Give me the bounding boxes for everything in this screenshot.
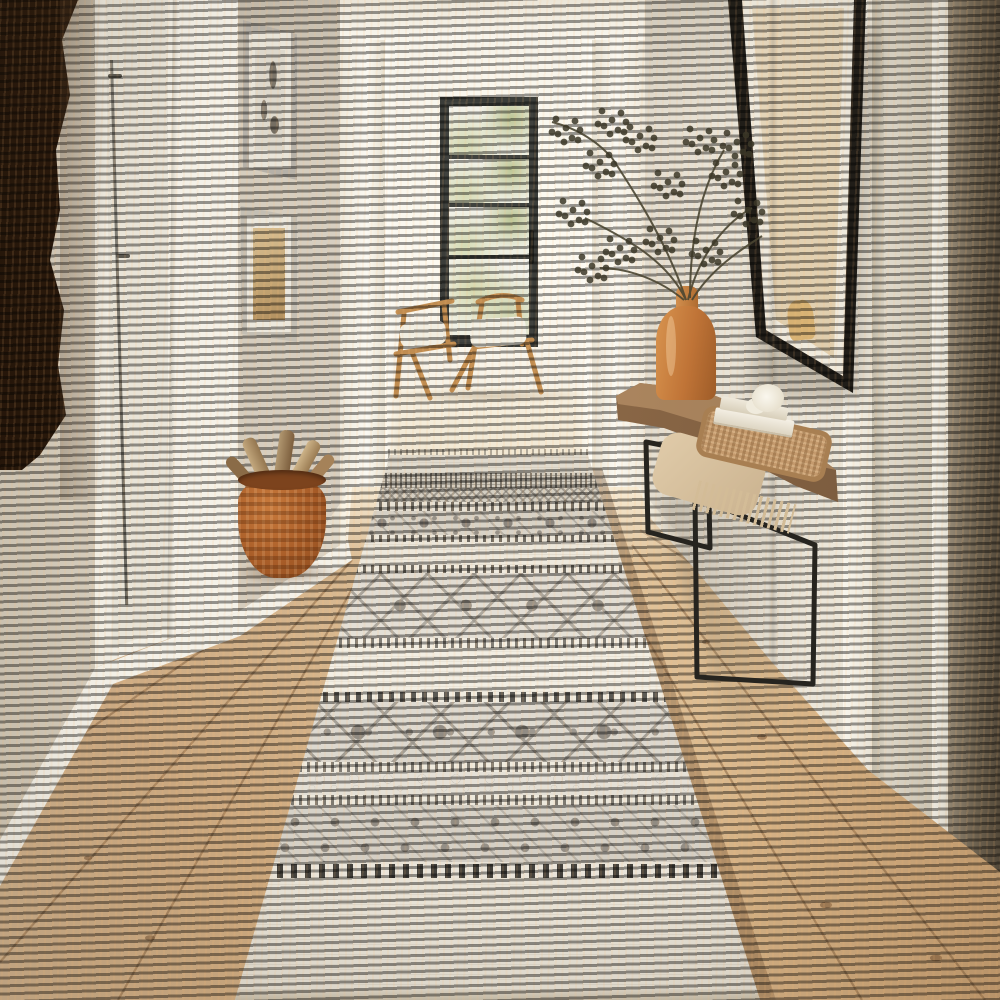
hallway-photo	[0, 0, 1000, 1000]
dried-branches	[0, 0, 1000, 1000]
